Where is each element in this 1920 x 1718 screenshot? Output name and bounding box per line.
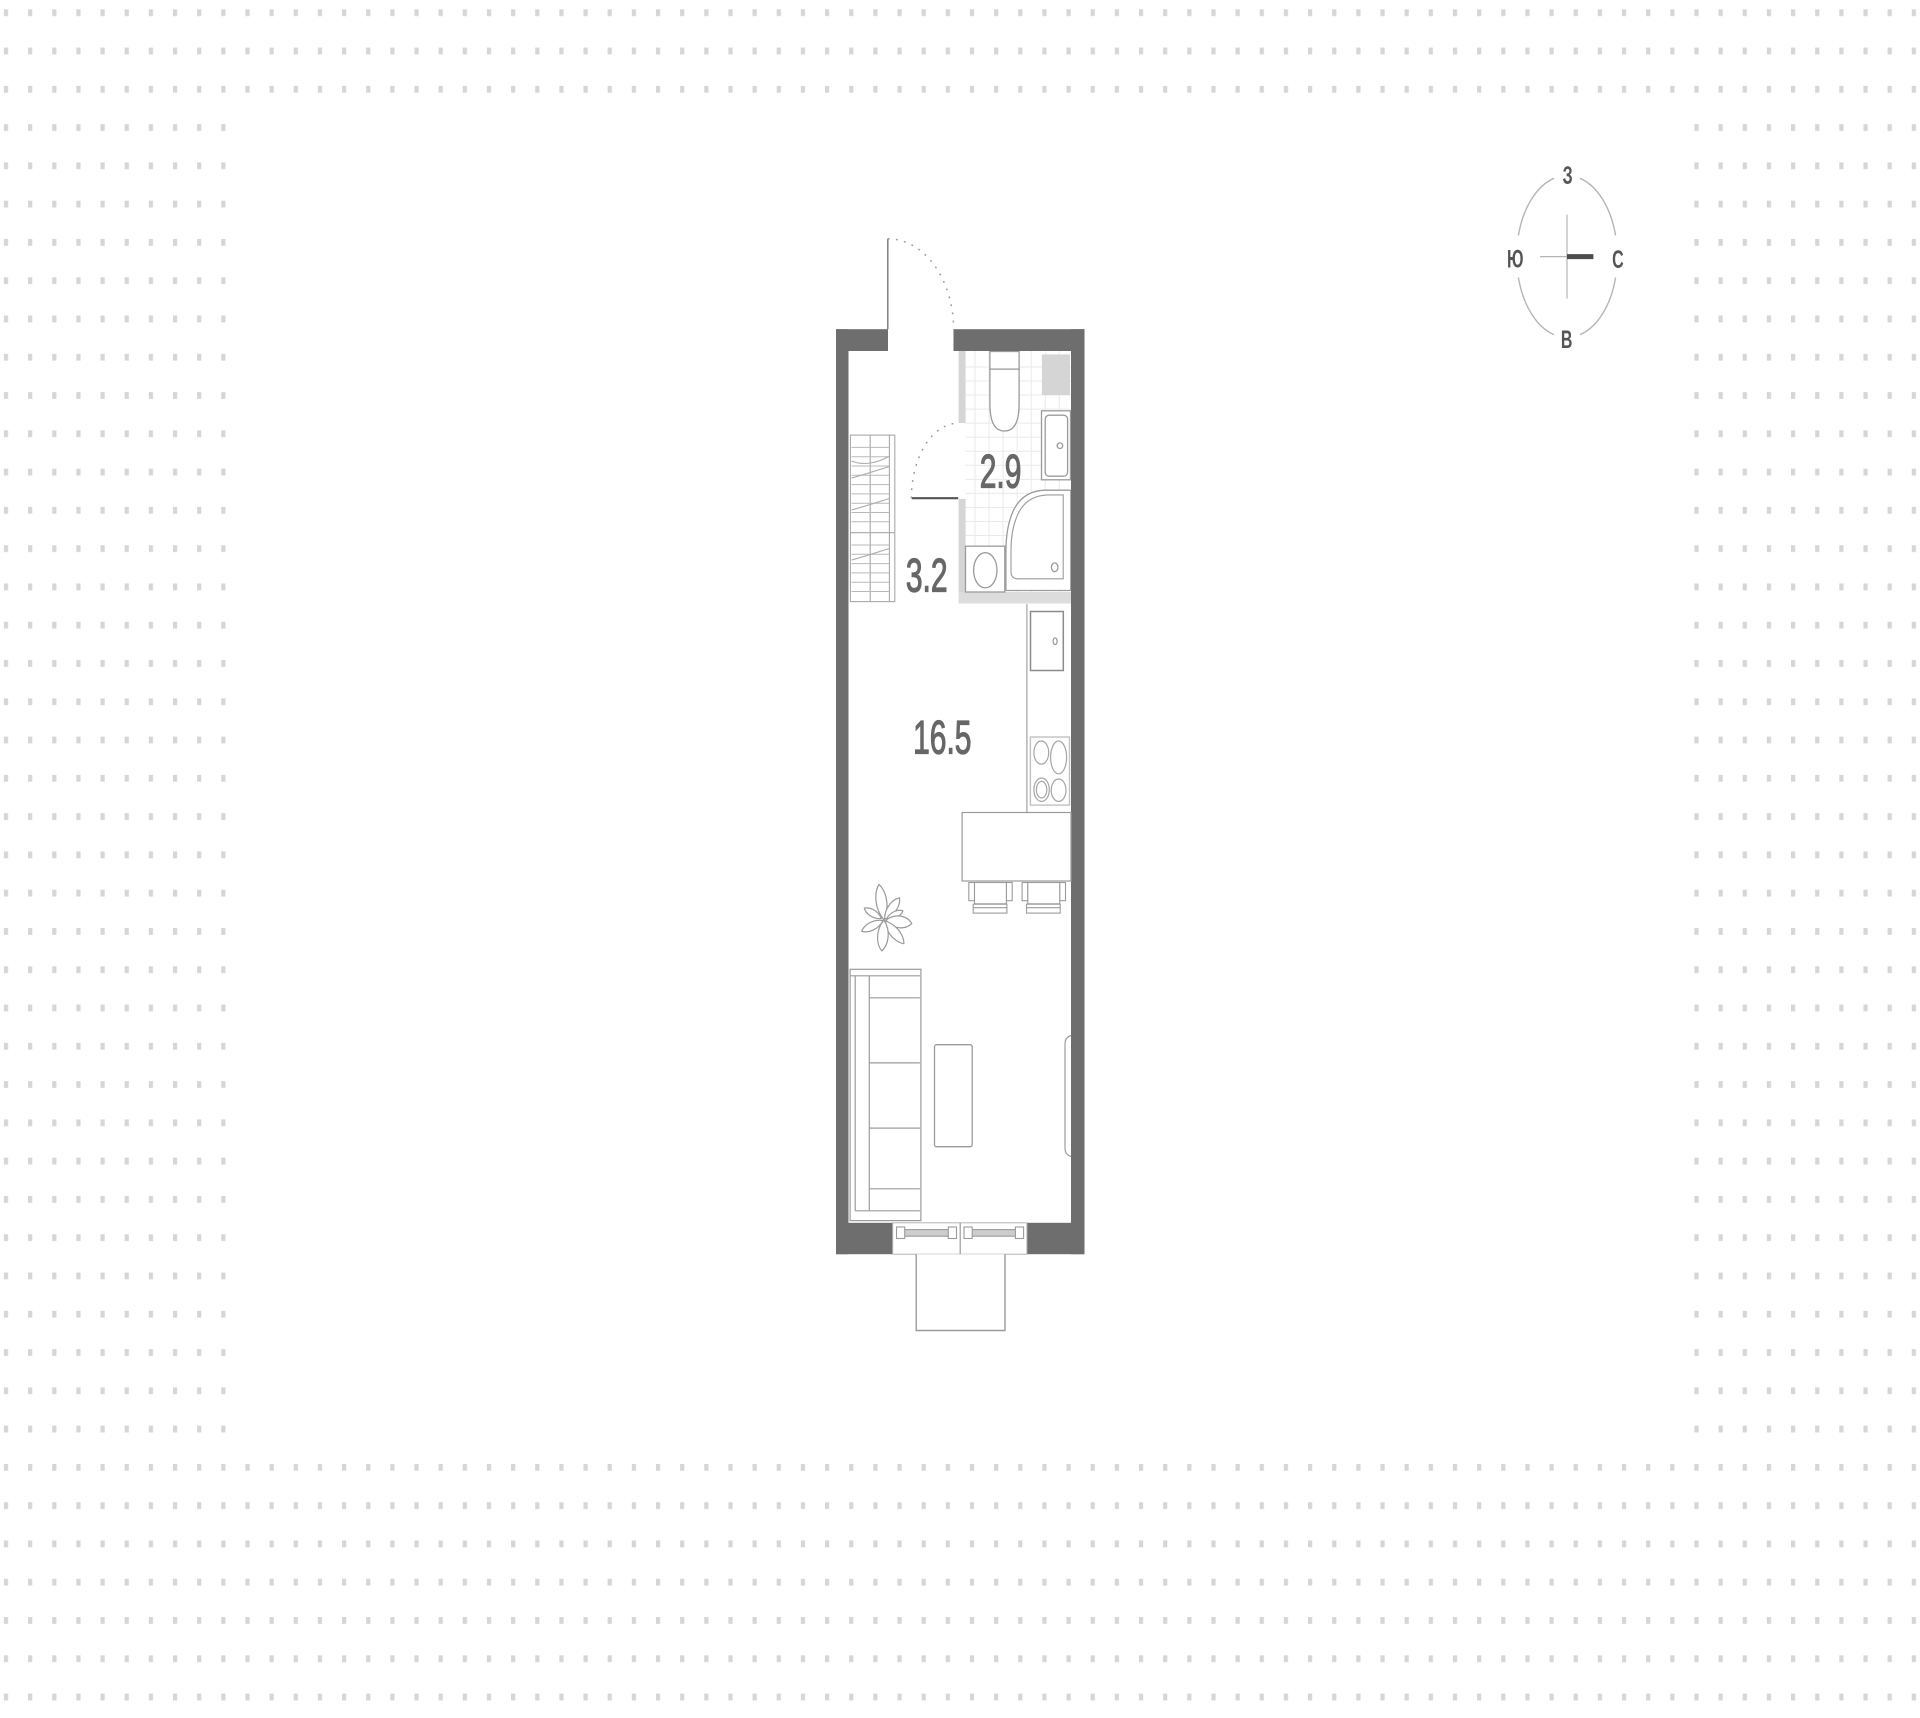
svg-text:16.5: 16.5: [913, 712, 971, 765]
svg-text:В: В: [1561, 327, 1573, 354]
svg-text:Ю: Ю: [1507, 246, 1523, 273]
svg-text:С: С: [1612, 246, 1624, 273]
svg-text:3.2: 3.2: [906, 550, 948, 603]
svg-text:З: З: [1563, 163, 1573, 190]
svg-text:2.9: 2.9: [980, 446, 1022, 499]
